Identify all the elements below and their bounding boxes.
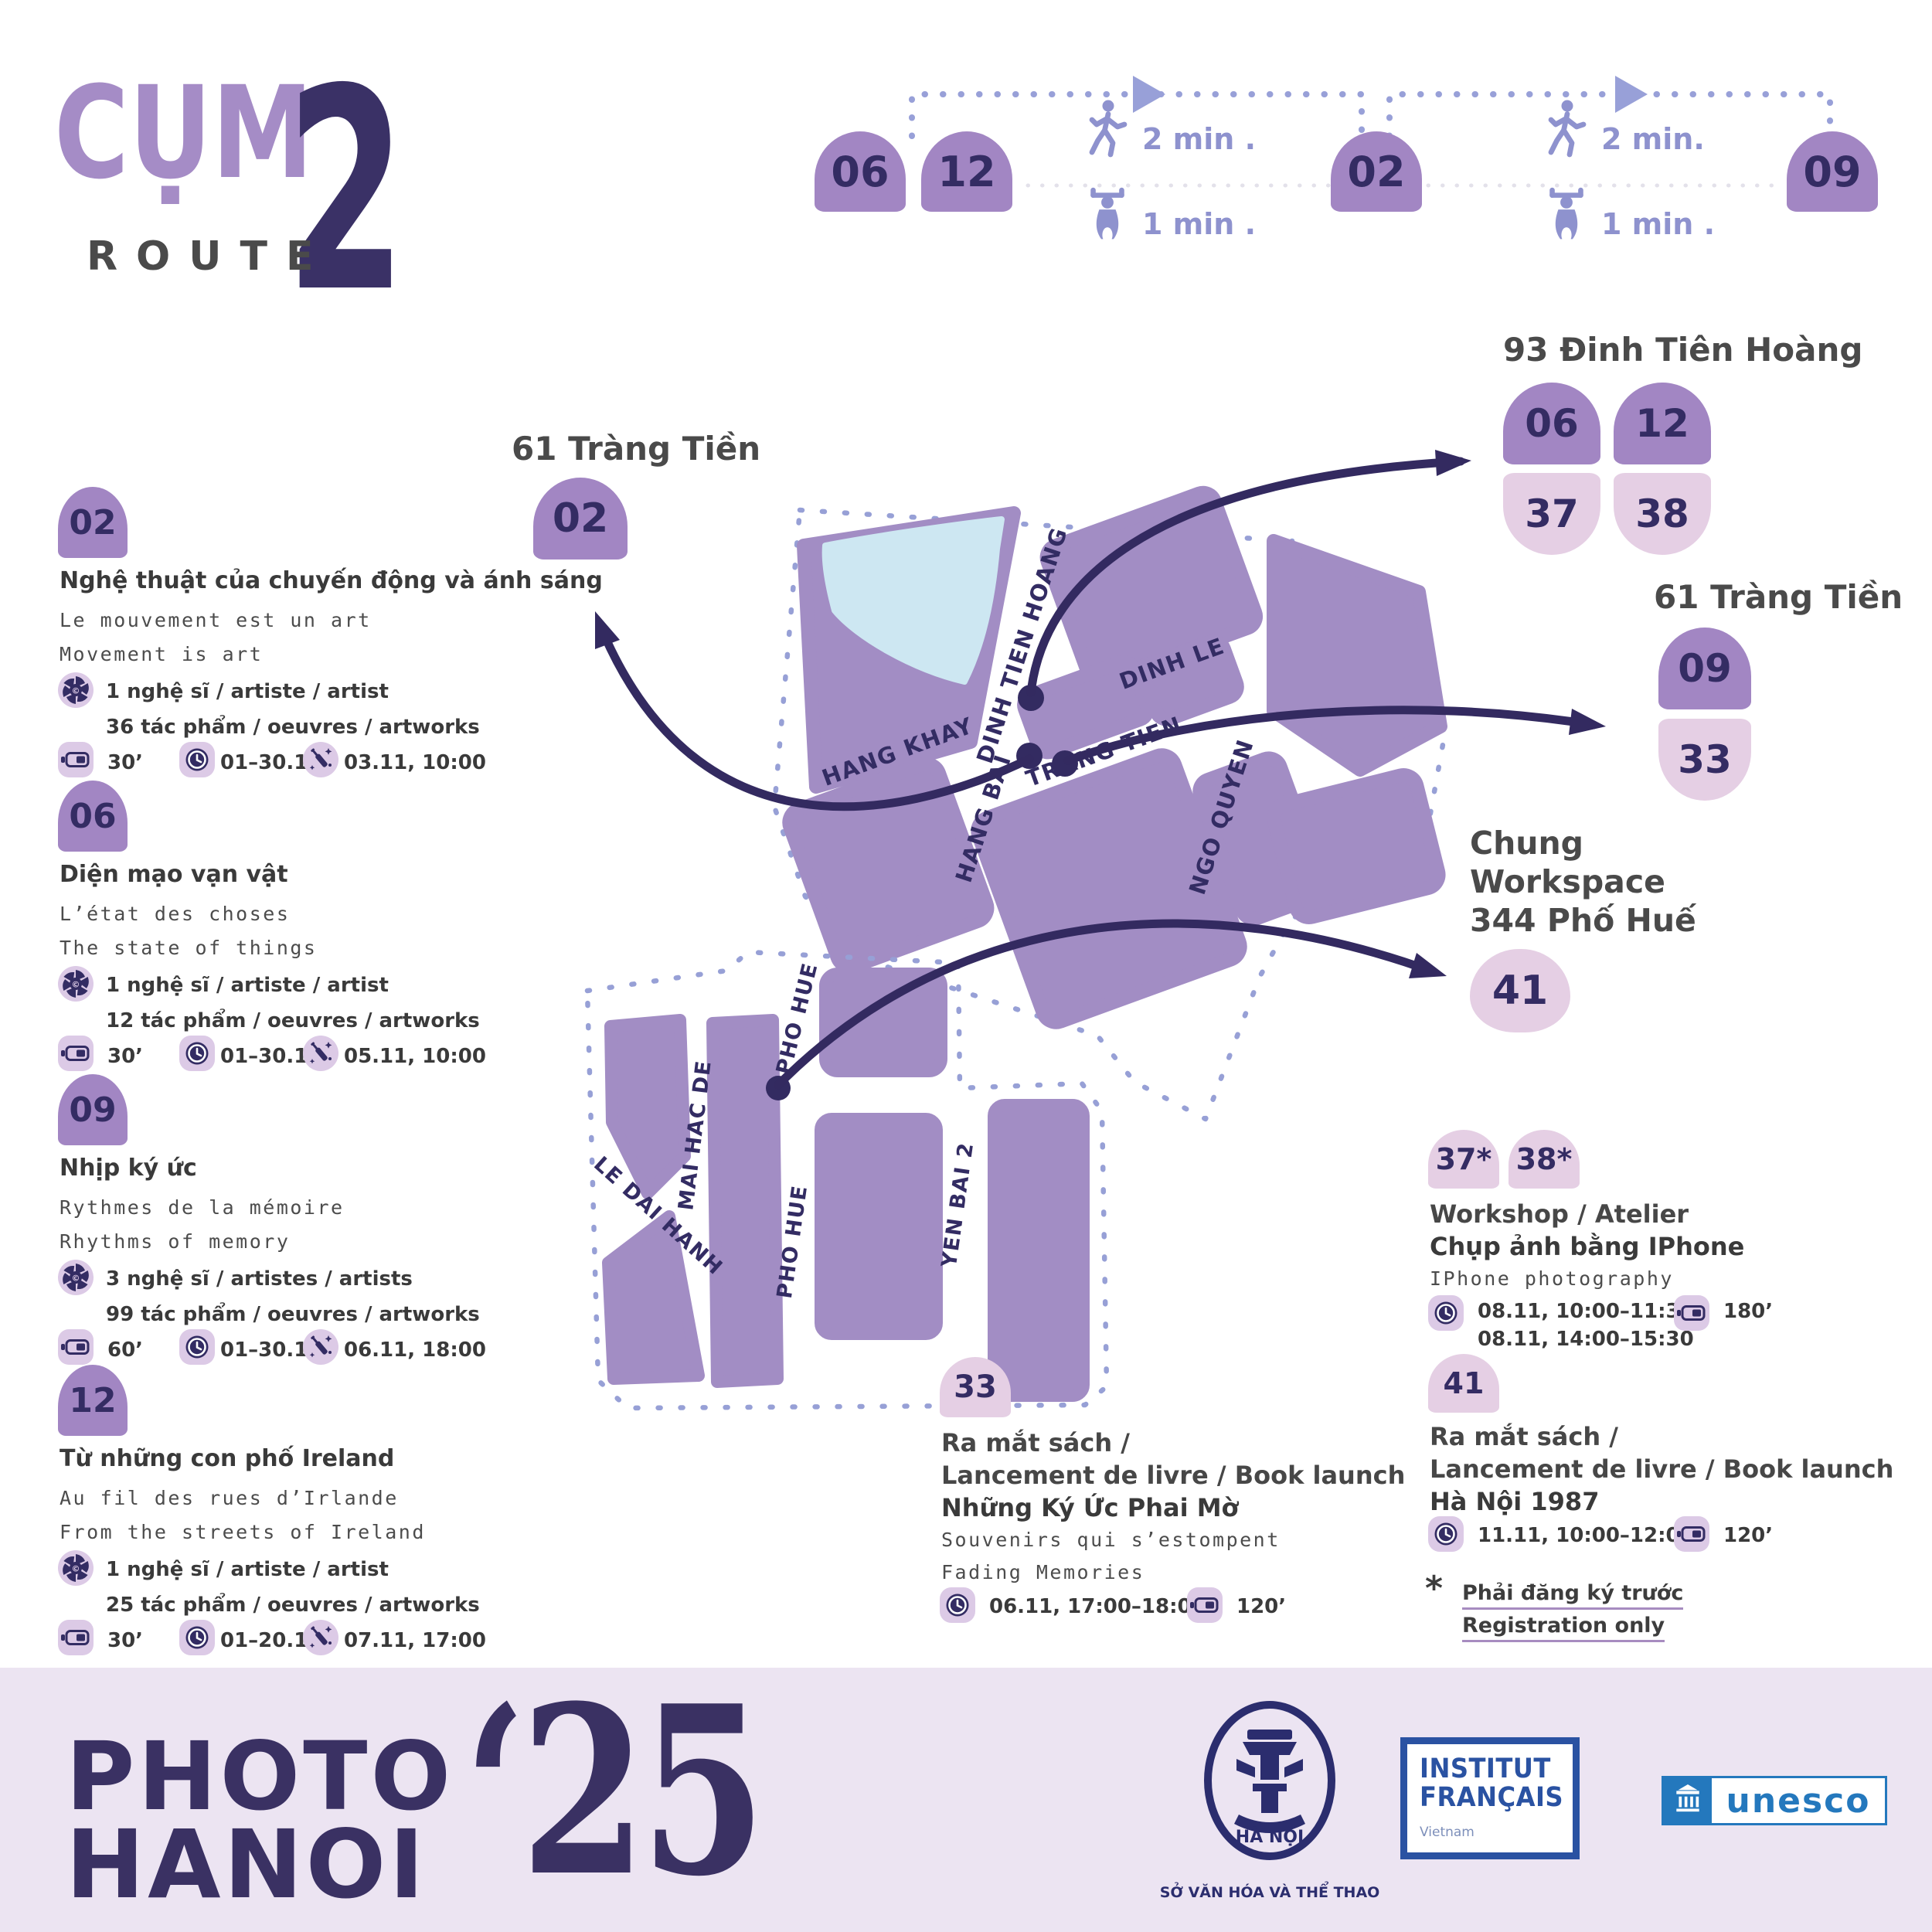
event-card-33: 33 Ra mắt sách / Lancement de livre / Bo… <box>940 1357 1419 1666</box>
clock-icon <box>1428 1516 1464 1552</box>
opening-icon <box>303 1620 338 1655</box>
event41-time: 11.11, 10:00–12:00 <box>1478 1524 1694 1547</box>
event-artists: 1 nghệ sĩ / artiste / artist <box>106 1558 389 1581</box>
event-type-line-1: Ra mắt sách / <box>941 1428 1130 1458</box>
clock-icon <box>179 1620 215 1655</box>
event-subtitle-en: The state of things <box>60 937 317 959</box>
clock-icon <box>179 1036 215 1071</box>
event41-badge: 41 <box>1428 1354 1499 1413</box>
event-artworks: 25 tác phẩm / oeuvres / artworks <box>106 1594 480 1617</box>
event-subtitle-fr: L’état des choses <box>60 903 290 925</box>
event-card-09: 09 Nhịp ký ức Rythmes de la mémoire Rhyt… <box>58 1074 553 1368</box>
duration-icon <box>1187 1587 1223 1623</box>
scooter-icon <box>1085 184 1130 247</box>
svg-text:©: © <box>72 1274 80 1284</box>
event-subtitle-fr: Le mouvement est un art <box>60 609 372 631</box>
duration-icon <box>58 1329 94 1365</box>
event-subtitle-fr: Souvenirs qui s’estompent <box>941 1529 1281 1551</box>
artist-icon: © <box>58 966 94 1002</box>
chung-line-3: 344 Phố Huế <box>1470 901 1696 940</box>
duration-icon <box>58 1620 94 1655</box>
workshop-badge-37: 37* <box>1428 1130 1499 1189</box>
location-label-61-trang-tien-right: 61 Tràng Tiền <box>1654 578 1903 616</box>
walk-time-2: 2 min. <box>1601 122 1705 156</box>
chung-line-1: Chung <box>1470 824 1696 862</box>
hanoi-seal-logo: HÀ NỘI <box>1198 1697 1342 1879</box>
event-opening: 07.11, 17:00 <box>344 1629 486 1652</box>
event-type-line-2: Lancement de livre / Book launch <box>941 1461 1405 1490</box>
registration-note-vi: Phải đăng ký trước <box>1462 1581 1683 1610</box>
event-opening: 05.11, 10:00 <box>344 1045 486 1068</box>
event-title: Nghệ thuật của chuyến động và ánh sáng <box>60 567 603 594</box>
walk-icon <box>1082 99 1130 159</box>
seal-department-text: SỞ VĂN HÓA VÀ THỂ THAO <box>1158 1884 1382 1901</box>
location-label-93-dinh-tien-hoang: 93 Đinh Tiên Hoàng <box>1503 331 1862 369</box>
workshop-time-1: 08.11, 10:00–11:30 <box>1478 1300 1694 1323</box>
event41-title: Hà Nội 1987 <box>1430 1487 1599 1516</box>
artist-icon: © <box>58 1550 94 1586</box>
seal-city-text: HÀ NỘI <box>1236 1826 1304 1847</box>
registration-note-en: Registration only <box>1462 1614 1665 1642</box>
ride-time-1: 1 min . <box>1142 207 1256 241</box>
event-subtitle-fr: Rythmes de la mémoire <box>60 1196 345 1219</box>
event-title: Diện mạo vạn vật <box>60 861 288 888</box>
event41-type-line-1: Ra mắt sách / <box>1430 1422 1618 1451</box>
if-line-2: FRANÇAIS <box>1420 1784 1560 1812</box>
event-subtitle-fr: Au fil des rues d’Irlande <box>60 1487 399 1509</box>
event-opening: 03.11, 10:00 <box>344 751 486 774</box>
scooter-icon <box>1544 184 1589 247</box>
note-vi-text: Phải đăng ký trước <box>1462 1581 1683 1610</box>
event-badge: 33 <box>940 1357 1011 1417</box>
ride-time-2: 1 min . <box>1601 207 1715 241</box>
event41-duration: 120’ <box>1723 1524 1773 1547</box>
poster-route-2: HANG KHAY DINH TIEN HOANG DINH LE TRANG … <box>0 0 1932 1932</box>
svg-text:©: © <box>72 686 80 696</box>
clock-icon <box>1428 1295 1464 1331</box>
event-card-02: 02 Nghệ thuật của chuyến động và ánh sán… <box>58 487 553 781</box>
walk-time-1: 2 min . <box>1142 122 1256 156</box>
event41-type-line-2: Lancement de livre / Book launch <box>1430 1454 1893 1484</box>
location-label-chung-workspace: Chung Workspace 344 Phố Huế <box>1470 824 1696 940</box>
workshop-badge-38: 38* <box>1509 1130 1580 1189</box>
artist-icon: © <box>58 672 94 708</box>
workshop-subtitle-en: IPhone photography <box>1430 1267 1674 1290</box>
event-artworks: 99 tác phẩm / oeuvres / artworks <box>106 1303 480 1326</box>
registration-note-star: * <box>1425 1569 1443 1608</box>
duration-icon <box>58 1036 94 1071</box>
event-title: Những Ký Ức Phai Mờ <box>941 1493 1239 1522</box>
opening-icon <box>303 1329 338 1365</box>
event-duration: 30’ <box>107 1629 143 1652</box>
svg-text:©: © <box>72 1564 80 1574</box>
street-label-pho-hue-upper: PHO HUE <box>772 960 823 1077</box>
street-label-yen-bai-2: YEN BAI 2 <box>937 1141 979 1270</box>
unesco-wordmark: unesco <box>1712 1778 1885 1823</box>
workshop-title: Chụp ảnh bằng IPhone <box>1430 1232 1744 1261</box>
event-subtitle-en: From the streets of Ireland <box>60 1521 426 1543</box>
if-line-3: Vietnam <box>1420 1825 1573 1840</box>
event-artists: 1 nghệ sĩ / artiste / artist <box>106 680 389 703</box>
event-duration: 120’ <box>1236 1595 1286 1618</box>
footer-hanoi: HANOI <box>66 1818 427 1912</box>
duration-icon <box>1674 1516 1709 1552</box>
clock-icon <box>940 1587 975 1623</box>
chung-line-2: Workspace <box>1470 862 1696 901</box>
footer-year: ‘25 <box>464 1675 760 1907</box>
if-line-1: INSTITUT <box>1420 1755 1560 1784</box>
institut-francais-logo: INSTITUT FRANÇAIS Vietnam <box>1400 1737 1580 1859</box>
event-time: 06.11, 17:00–18:00 <box>989 1595 1206 1618</box>
workshop-time-2: 08.11, 14:00–15:30 <box>1478 1328 1694 1351</box>
event-artists: 3 nghệ sĩ / artistes / artists <box>106 1267 413 1291</box>
event-badge: 12 <box>58 1365 128 1436</box>
event-badge: 09 <box>58 1074 128 1145</box>
event-subtitle-en: Fading Memories <box>941 1561 1145 1583</box>
event-card-06: 06 Diện mạo vạn vật L’état des choses Th… <box>58 781 553 1074</box>
event-card-12: 12 Từ những con phố Ireland Au fil des r… <box>58 1365 553 1658</box>
duration-icon <box>58 742 94 777</box>
event-artists: 1 nghệ sĩ / artiste / artist <box>106 974 389 997</box>
location-label-61-trang-tien-left: 61 Tràng Tiền <box>512 430 760 468</box>
event-subtitle-en: Rhythms of memory <box>60 1230 290 1253</box>
event-opening: 06.11, 18:00 <box>344 1338 486 1362</box>
brand-route: ROUTE <box>87 233 332 280</box>
walk-icon <box>1541 99 1589 159</box>
svg-text:©: © <box>72 980 80 990</box>
note-en-text: Registration only <box>1462 1614 1665 1642</box>
event-artworks: 36 tác phẩm / oeuvres / artworks <box>106 716 480 739</box>
event-subtitle-en: Movement is art <box>60 643 263 665</box>
artist-icon: © <box>58 1260 94 1295</box>
brand-logo: CỤM 2 ROUTE <box>54 62 518 286</box>
unesco-temple-icon <box>1664 1778 1712 1823</box>
unesco-logo: unesco <box>1662 1776 1887 1825</box>
event-duration: 30’ <box>107 751 143 774</box>
event-title: Từ những con phố Ireland <box>60 1445 394 1472</box>
brand-number: 2 <box>286 53 406 331</box>
workshop-type: Workshop / Atelier <box>1430 1199 1689 1229</box>
event-badge: 06 <box>58 781 128 852</box>
event-duration: 30’ <box>107 1045 143 1068</box>
event-artworks: 12 tác phẩm / oeuvres / artworks <box>106 1009 480 1032</box>
opening-icon <box>303 1036 338 1071</box>
event-duration: 60’ <box>107 1338 143 1362</box>
opening-icon <box>303 742 338 777</box>
clock-icon <box>179 1329 215 1365</box>
duration-icon <box>1674 1295 1709 1331</box>
clock-icon <box>179 742 215 777</box>
event-title: Nhịp ký ức <box>60 1155 197 1182</box>
event-badge: 02 <box>58 487 128 558</box>
workshop-duration: 180’ <box>1723 1300 1773 1323</box>
brand-cluster: CỤM <box>54 70 313 197</box>
workshop-card: 37* 38* Workshop / Atelier Chụp ảnh bằng… <box>1428 1130 1923 1671</box>
